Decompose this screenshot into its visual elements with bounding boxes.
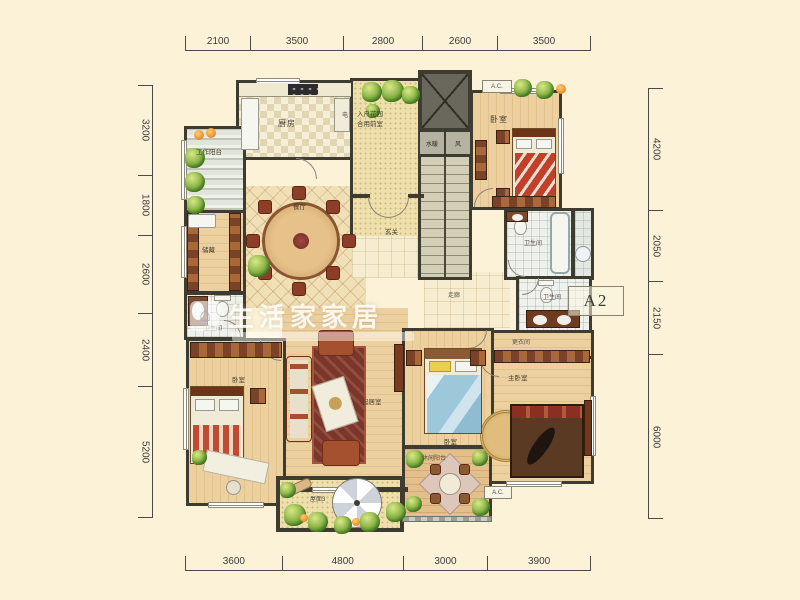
room-label-bedroom-sw: 卧室 — [232, 374, 245, 384]
staircase — [418, 154, 472, 280]
blanket — [427, 375, 481, 433]
flower — [300, 514, 308, 522]
sofa-long — [286, 356, 312, 442]
window — [558, 118, 564, 174]
window — [506, 481, 562, 487]
pillow — [219, 399, 239, 411]
chair — [326, 266, 340, 280]
table-centerpiece — [293, 233, 309, 249]
pillow-row — [512, 406, 582, 418]
dimension-bar-right: 4200 2050 2150 6000 — [648, 88, 663, 519]
room-label-electric: 电 — [342, 110, 348, 119]
floor-plan-page: 2100 3500 2800 2600 3500 3600 4800 3000 … — [0, 0, 800, 600]
chair — [430, 464, 441, 475]
dimension-value: 2800 — [343, 36, 422, 51]
flower — [194, 130, 204, 140]
dimension-value: 2050 — [648, 210, 663, 281]
sink-basin — [557, 315, 571, 325]
wall-segment — [376, 487, 408, 492]
umbrella-pole — [354, 500, 360, 506]
ac-label-bottom: A.C. — [484, 486, 512, 499]
window — [181, 140, 187, 200]
sink-basin — [533, 315, 547, 325]
dimension-bar-left: 3200 1800 2600 2400 5200 — [138, 85, 153, 518]
vanity — [506, 211, 528, 222]
dimension-value: 2400 — [138, 313, 153, 386]
chair — [430, 493, 441, 504]
room-label-corridor: 走廊 — [448, 290, 460, 299]
dimension-value: 3900 — [487, 556, 590, 571]
chair — [459, 493, 470, 504]
pillow — [516, 139, 532, 149]
chair — [258, 200, 272, 214]
headboard — [191, 387, 243, 396]
table-decor — [327, 395, 343, 411]
balcony-table — [439, 473, 461, 495]
room-label-bedroom-ne: 卧室 — [490, 114, 508, 125]
dimension-value: 4800 — [282, 556, 403, 571]
room-label-roof-terrace: 屋面3 — [310, 494, 325, 503]
room-label-bath-ne: 卫生间 — [524, 238, 542, 247]
room-label-living: 起居室 — [362, 396, 382, 406]
bed-ne — [512, 128, 556, 202]
wall-segment — [408, 194, 424, 198]
tv-cabinet — [394, 344, 404, 392]
wardrobe — [475, 140, 487, 180]
pillow — [195, 399, 215, 411]
room-label-bath-e: 卫生间 — [543, 292, 561, 301]
nightstand — [470, 350, 486, 366]
dimension-value: 2600 — [422, 36, 497, 51]
wardrobe-row — [494, 350, 590, 363]
pillow — [536, 139, 552, 149]
dimension-value: 3000 — [403, 556, 487, 571]
chair — [326, 200, 340, 214]
stove — [288, 84, 318, 95]
desk-chair — [226, 480, 241, 495]
sink-basin — [512, 214, 523, 221]
dimension-value: 1800 — [138, 175, 153, 236]
kitchen-cabinet — [241, 98, 259, 150]
dimension-value: 3200 — [138, 85, 153, 175]
dimension-value: 5200 — [138, 386, 153, 517]
window — [208, 502, 264, 508]
room-label-utility-air: 风 — [444, 130, 472, 156]
room-label-leisure-balcony: 休闲阳台 — [422, 453, 446, 462]
chair — [246, 234, 260, 248]
room-label-dining: 餐厅 — [293, 201, 306, 211]
armchair — [322, 440, 360, 466]
watermark-text: 生活家家居 — [228, 297, 383, 334]
flower — [352, 518, 360, 526]
room-label-utility-water: 水暖 — [418, 130, 446, 156]
door-arc — [296, 158, 317, 179]
nightstand — [496, 130, 510, 144]
headboard — [513, 129, 555, 137]
dimension-value: 2600 — [138, 235, 153, 312]
flower — [206, 128, 216, 138]
unit-label: A2 — [568, 286, 624, 316]
room-label-foyer: 玄关 — [385, 226, 398, 236]
room-label-bedroom-center: 卧室 — [444, 436, 457, 446]
nightstand — [250, 388, 266, 404]
blanket — [515, 153, 555, 199]
room-label-work-balcony: 工作阳台 — [196, 146, 222, 156]
elevator-shaft — [418, 70, 472, 132]
house-icon: ⌂ — [190, 301, 220, 331]
tv-cabinet — [584, 400, 592, 456]
dimension-value: 2150 — [648, 281, 663, 355]
corridor-floor — [424, 272, 510, 328]
master-bed — [510, 404, 584, 478]
watermark: ⌂ 生活家家居 — [190, 297, 383, 334]
utility-closet — [572, 208, 594, 280]
nightstand — [406, 350, 422, 366]
stair-divider — [444, 157, 446, 277]
dimension-value: 3500 — [497, 36, 590, 51]
flower — [556, 84, 566, 94]
washing-machine — [188, 214, 216, 228]
balcony-railing — [402, 516, 492, 522]
room-label-dressing: 更衣间 — [512, 337, 530, 346]
bathtub — [550, 212, 570, 274]
dimension-value: 3600 — [185, 556, 282, 571]
room-label-storage: 储藏 — [202, 244, 215, 254]
dimension-value: 6000 — [648, 354, 663, 518]
room-label-entry-garden-1: 入户花园 — [357, 108, 383, 118]
window — [183, 388, 189, 450]
washer-drum — [575, 246, 591, 262]
dimension-value: 4200 — [648, 88, 663, 210]
watermark-subline — [232, 332, 414, 341]
bookshelf — [190, 342, 282, 358]
bed-decor — [523, 424, 560, 468]
dimension-bar-bottom: 3600 4800 3000 3900 — [185, 556, 591, 571]
toilet-tank — [538, 280, 554, 286]
ac-label-top: A.C. — [482, 80, 512, 93]
chair — [459, 464, 470, 475]
pillow — [429, 361, 451, 372]
dimension-bar-top: 2100 3500 2800 2600 3500 — [185, 36, 591, 51]
room-label-master-bedroom: 主卧室 — [508, 372, 528, 382]
closet — [492, 196, 556, 208]
dimension-value: 2100 — [185, 36, 250, 51]
storage-shelf — [229, 213, 241, 291]
chair — [342, 234, 356, 248]
dimension-value: 3500 — [250, 36, 343, 51]
chair — [292, 282, 306, 296]
chair — [292, 186, 306, 200]
room-label-entry-garden-2: 合用前室 — [357, 118, 383, 128]
room-label-kitchen: 厨房 — [278, 118, 296, 129]
